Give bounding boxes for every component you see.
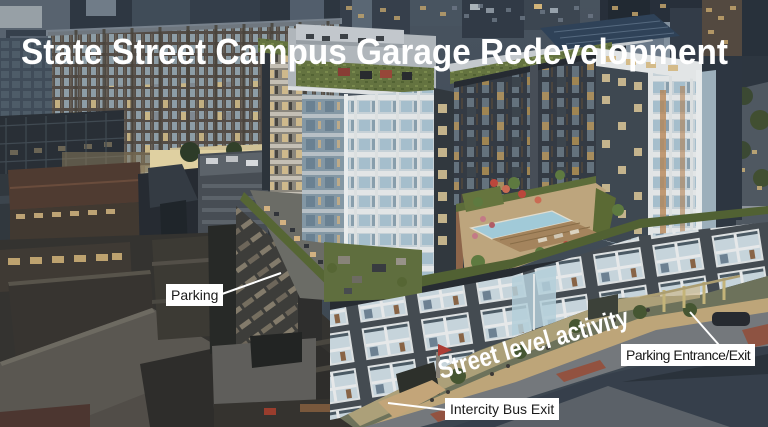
svg-text:State Street Campus Garage Red: State Street Campus Garage Redevelopment (21, 31, 728, 72)
